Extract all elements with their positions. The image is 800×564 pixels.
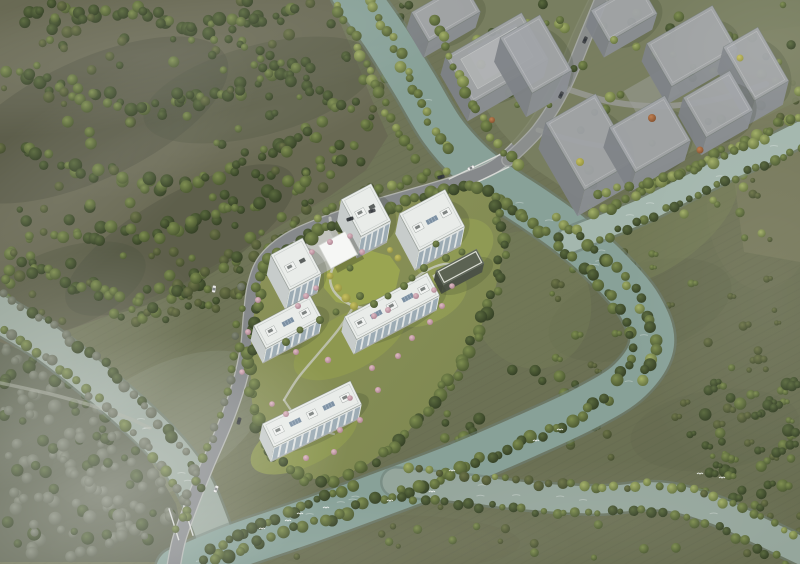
- rendering-canvas: [0, 0, 800, 564]
- aerial-site-rendering: [0, 0, 800, 564]
